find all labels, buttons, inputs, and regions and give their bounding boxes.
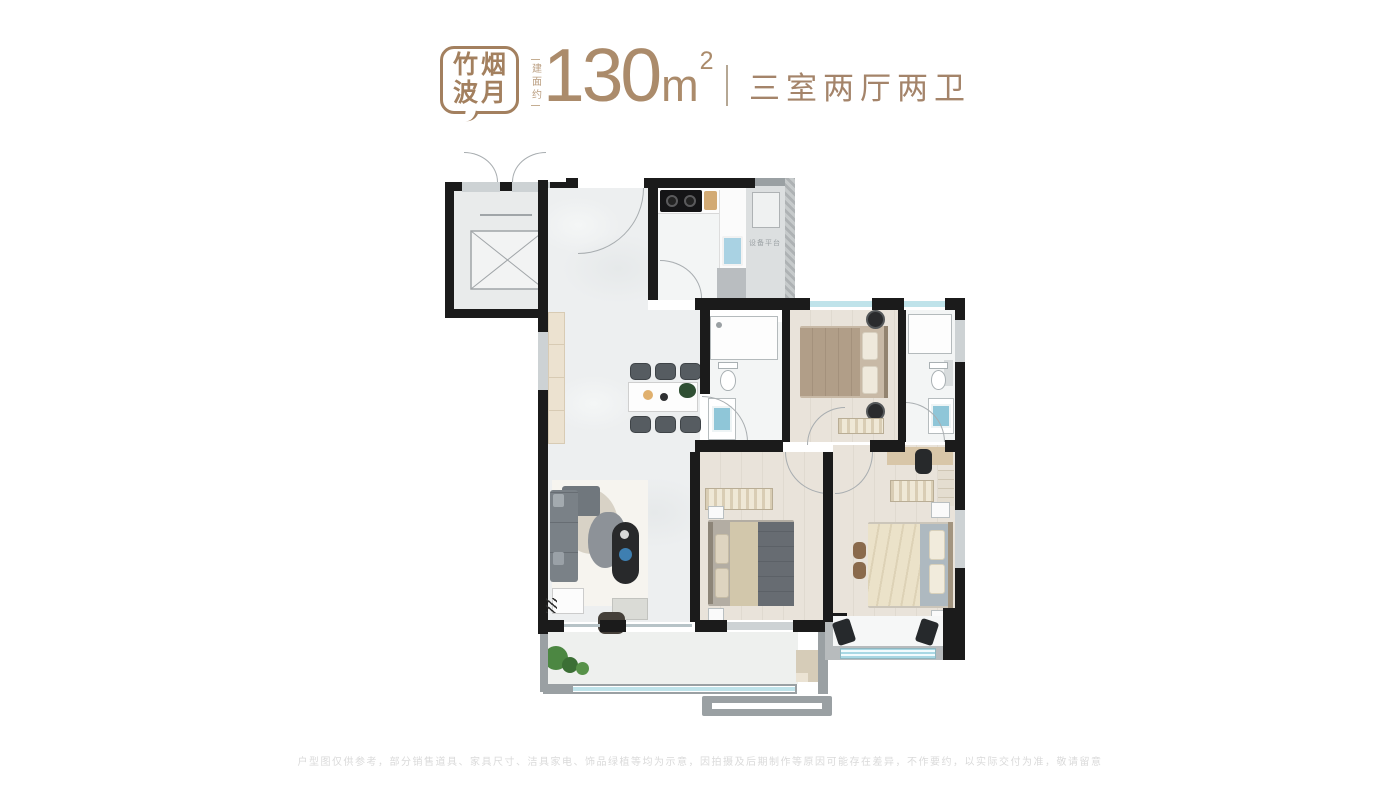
- entry-cabinet: [548, 312, 565, 444]
- window: [904, 300, 949, 308]
- pillow: [715, 534, 729, 564]
- desk-chair: [915, 449, 932, 474]
- dining-chair: [630, 416, 651, 433]
- window: [727, 622, 793, 630]
- dining-chair: [655, 416, 676, 433]
- stool: [853, 542, 866, 559]
- toilet-tank: [929, 362, 948, 369]
- wall-segment: [823, 452, 833, 622]
- wall-segment: [870, 440, 905, 452]
- pillow: [862, 332, 878, 360]
- nightstand: [931, 502, 950, 518]
- cutting-board: [704, 191, 717, 210]
- headboard: [708, 522, 713, 604]
- area-prefix-text: 建面约: [528, 63, 543, 102]
- wall-segment: [695, 440, 783, 452]
- badge-speech-tail: [464, 109, 479, 123]
- balcony-floor: [546, 632, 798, 684]
- area-prefix: 建面约: [527, 59, 543, 106]
- sofa-pillow: [553, 494, 564, 507]
- toilet-bowl: [931, 370, 946, 390]
- wall-segment: [785, 178, 795, 310]
- bed-duvet: [800, 328, 860, 396]
- wall-segment: [648, 188, 658, 300]
- area-exponent: 2: [700, 47, 714, 75]
- decor-sphere: [619, 548, 632, 561]
- bed-duvet: [758, 522, 794, 606]
- shower: [908, 314, 952, 354]
- toilet-tank: [718, 362, 738, 369]
- sofa-pillow: [553, 552, 564, 565]
- lower-parapet-stripe: [712, 703, 822, 709]
- wall-segment: [695, 298, 810, 310]
- disclaimer-text: 户型图仅供参考，部分销售道具、家具尺寸、洁具家电、饰品绿植等均为示意，因拍摄及后…: [0, 753, 1400, 768]
- balcony-plant: [576, 662, 589, 675]
- dining-chair: [655, 363, 676, 380]
- layout-label: 三室两厅两卫: [749, 63, 971, 108]
- project-badge: 竹烟 波月: [440, 46, 519, 114]
- nightstand-lamp: [866, 310, 885, 329]
- bed-duvet: [868, 524, 920, 606]
- dining-chair: [680, 416, 701, 433]
- elevator-door: [462, 182, 500, 192]
- door-swing: [464, 152, 498, 182]
- sliding-door: [564, 624, 600, 627]
- window: [955, 320, 965, 362]
- bed-duvet: [730, 522, 758, 606]
- table-plate: [643, 390, 653, 400]
- headboard: [884, 326, 888, 398]
- area-unit: m: [661, 60, 699, 111]
- area-value: 130m2: [543, 38, 713, 113]
- area-number: 130: [543, 33, 659, 117]
- table-plant: [679, 383, 696, 398]
- wall-segment: [542, 620, 564, 632]
- wardrobe: [890, 480, 934, 502]
- pillow: [715, 568, 729, 598]
- shower-head: [716, 322, 722, 328]
- headboard: [948, 522, 953, 608]
- wall-segment: [538, 180, 548, 332]
- floor-plan: 设备平台: [440, 150, 970, 725]
- sliding-door: [626, 624, 692, 627]
- wall-segment: [782, 310, 790, 442]
- window: [955, 510, 965, 568]
- window: [538, 332, 548, 390]
- bracket-bottom: [531, 105, 540, 106]
- burner: [666, 195, 678, 207]
- elevator-door-line: [480, 214, 532, 216]
- window: [810, 300, 872, 308]
- door-swing: [512, 152, 546, 182]
- pillow: [862, 366, 878, 394]
- wall-segment: [872, 298, 904, 310]
- dining-chair: [680, 363, 701, 380]
- elevator-x-symbol: [470, 230, 545, 290]
- bracket-top: [531, 59, 540, 60]
- wall-segment: [700, 310, 710, 394]
- bay-window-glass: [840, 648, 936, 659]
- washer-outline: [752, 192, 780, 228]
- pillow: [929, 564, 945, 594]
- badge-line2: 波月: [450, 80, 509, 108]
- decor-tray: [620, 530, 629, 539]
- wall-segment: [898, 310, 906, 442]
- wall-segment: [600, 620, 626, 632]
- toilet-bowl: [720, 370, 736, 391]
- equipment-platform-label: 设备平台: [745, 238, 785, 248]
- wall-segment: [690, 452, 700, 622]
- burner: [684, 195, 696, 207]
- badge-line1: 竹烟: [450, 52, 509, 80]
- balcony-window: [573, 686, 795, 692]
- kitchen-sink: [722, 236, 743, 266]
- table-plate: [660, 393, 668, 401]
- magazine-rack: [546, 598, 557, 613]
- stool: [853, 562, 866, 579]
- kitchen-cabinet: [717, 268, 746, 300]
- shelf: [938, 470, 954, 506]
- nightstand: [708, 506, 724, 519]
- dining-chair: [630, 363, 651, 380]
- wall-segment: [644, 178, 755, 188]
- wall-segment: [566, 178, 578, 188]
- header-divider: [726, 65, 728, 106]
- pillow: [929, 530, 945, 560]
